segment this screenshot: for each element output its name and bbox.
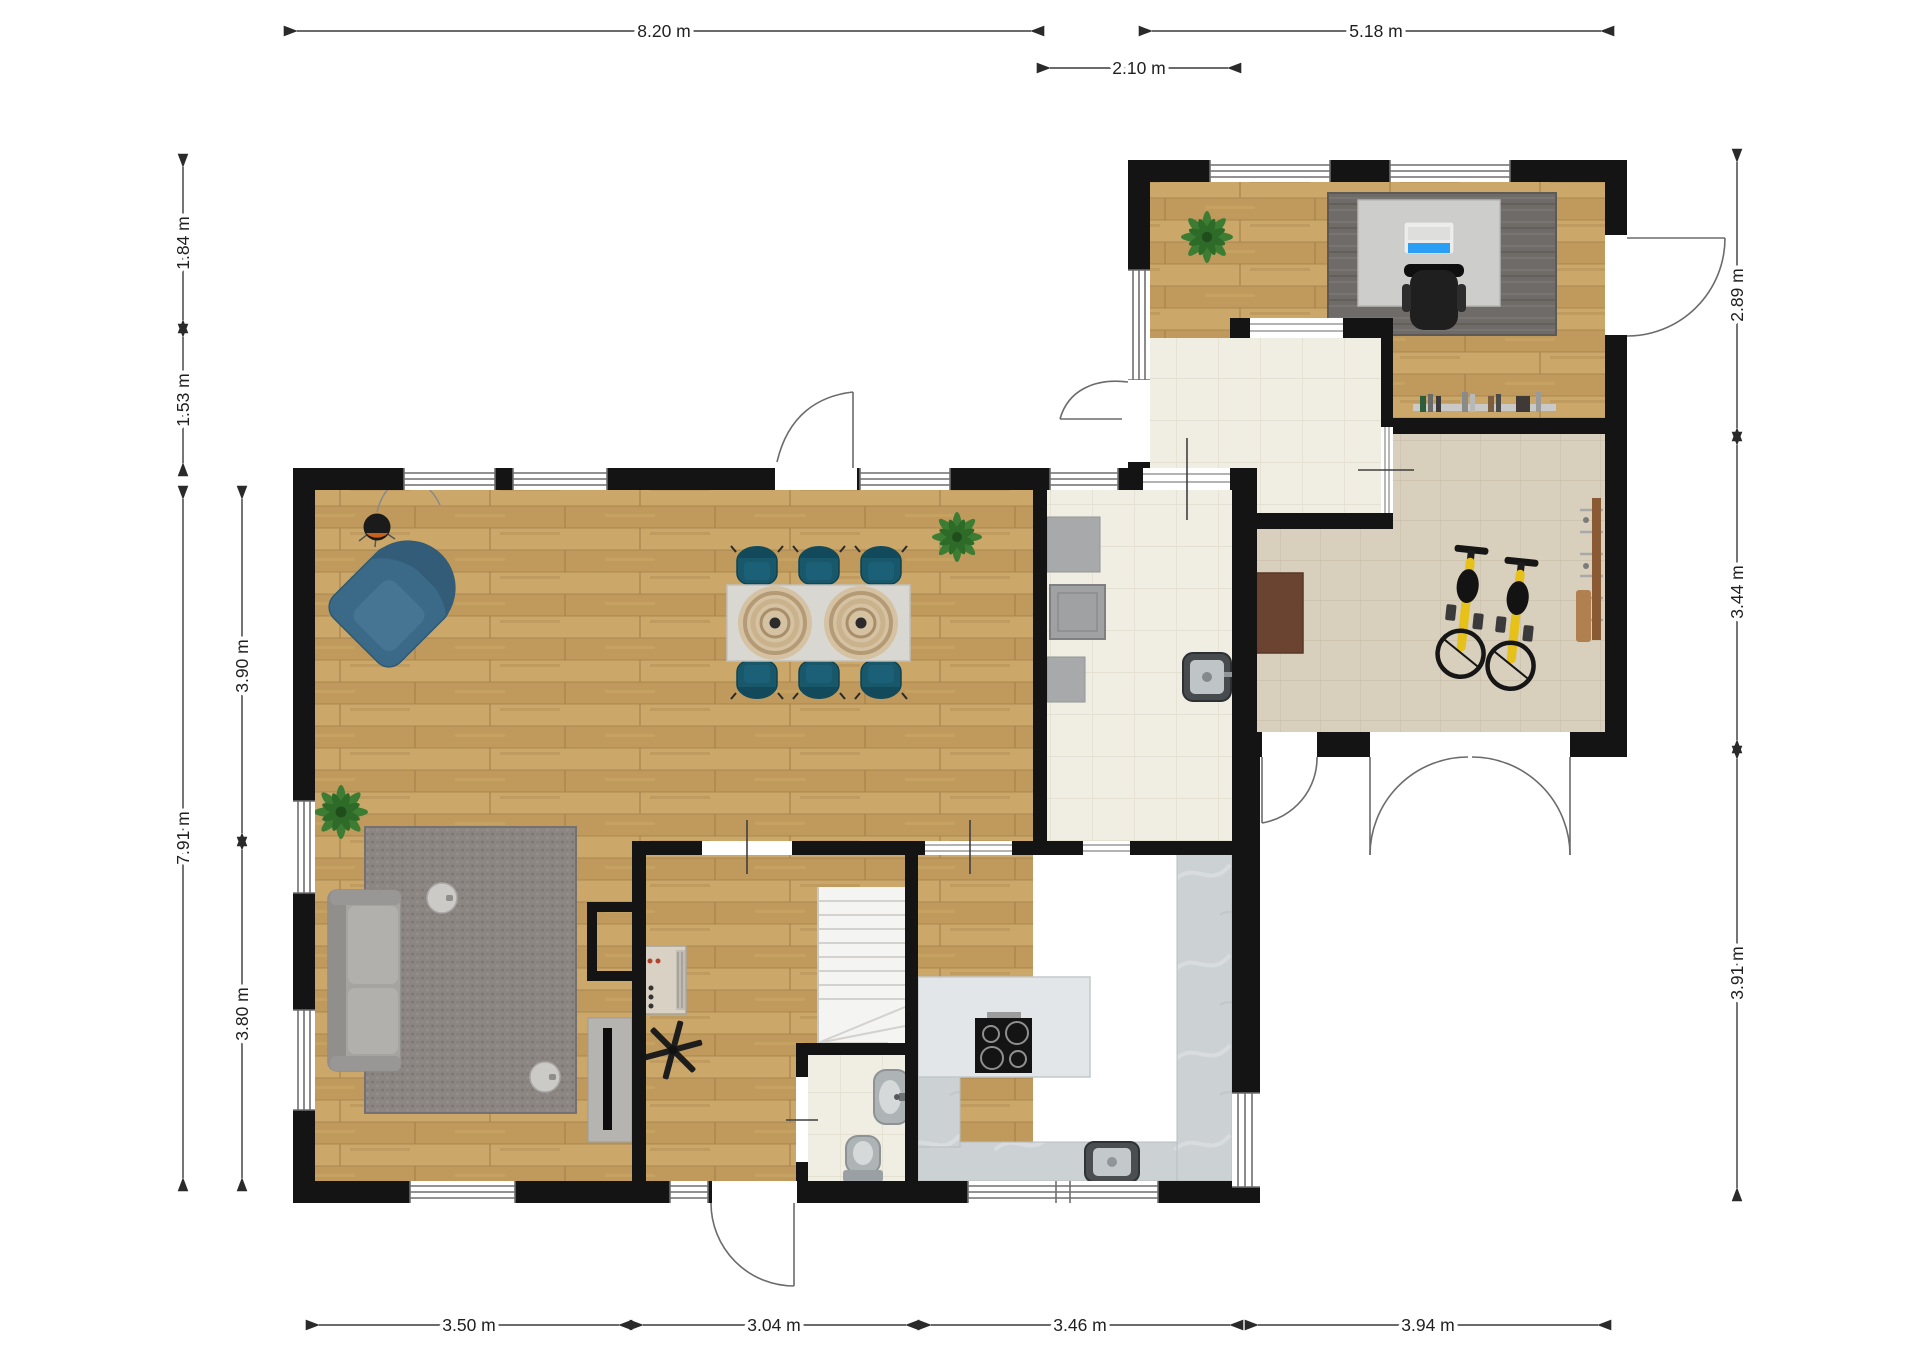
wall	[905, 841, 918, 1181]
window-icon	[1210, 160, 1330, 182]
wall	[1033, 490, 1047, 841]
wall	[1393, 418, 1627, 434]
office-chair-icon	[1402, 264, 1466, 330]
plant-icon	[1181, 211, 1233, 263]
wall	[1232, 468, 1257, 757]
utility-sink-icon	[1183, 653, 1236, 701]
door-swing-icon	[1060, 381, 1128, 419]
window-icon	[410, 1181, 515, 1203]
dim-left-link-offset: 1.53 m	[173, 373, 193, 427]
window-icon	[293, 1010, 315, 1110]
wall	[796, 1043, 918, 1055]
dim-left-living-depth: 3.90 m	[232, 639, 252, 693]
window-icon	[1232, 1093, 1260, 1187]
floor-plan-canvas: 8.20 m 5.18 m 2.10 m 1.84 m 1.53 m 7.91 …	[0, 0, 1920, 1358]
dim-right-gym-depth: 3.44 m	[1727, 565, 1747, 619]
interior-window	[1250, 318, 1343, 338]
door-opening	[775, 468, 857, 490]
round-rug-icon	[738, 586, 812, 660]
door-opening	[1605, 235, 1627, 335]
dim-left-annex-top-offset: 1.84 m	[173, 216, 193, 270]
dim-bottom-kitchen-width: 3.46 m	[1053, 1315, 1107, 1335]
side-table-icon	[530, 1062, 560, 1092]
window-icon	[1390, 160, 1510, 182]
door-swing-icon	[711, 1203, 794, 1286]
cooktop-icon	[975, 1012, 1032, 1073]
window-icon	[1128, 270, 1150, 380]
window-icon	[860, 468, 950, 490]
counter-icon	[1047, 657, 1085, 702]
door-opening	[1370, 732, 1570, 757]
door-swing-icon	[1262, 757, 1317, 823]
laptop-icon	[1404, 222, 1454, 254]
side-table-icon	[427, 883, 457, 913]
counter-icon	[1047, 517, 1100, 572]
plant-icon	[314, 785, 368, 839]
window-icon	[670, 1181, 708, 1203]
door-swing-icon	[777, 392, 853, 468]
dim-top-utility-width: 2.10 m	[1112, 58, 1166, 78]
window-icon	[513, 468, 607, 490]
door-swing-icon	[1627, 238, 1725, 336]
wall	[1381, 318, 1393, 427]
dim-top-annex-width: 5.18 m	[1349, 21, 1403, 41]
door-opening	[1262, 732, 1317, 757]
wall	[1128, 160, 1627, 182]
window-icon	[293, 801, 315, 893]
door-opening	[1128, 380, 1150, 462]
round-rug-icon	[824, 586, 898, 660]
door-opening	[712, 1181, 797, 1203]
sofa-icon	[328, 890, 401, 1071]
window-icon	[404, 468, 495, 490]
plant-icon	[932, 512, 982, 562]
dim-right-lower-depth: 3.91 m	[1727, 946, 1747, 1000]
dim-bottom-living-width: 3.50 m	[442, 1315, 496, 1335]
window-icon	[968, 1181, 1158, 1203]
counter-icon	[918, 1077, 960, 1147]
dim-bottom-gym-width: 3.94 m	[1401, 1315, 1455, 1335]
window-icon	[1050, 468, 1118, 490]
floor-plan-page: 8.20 m 5.18 m 2.10 m 1.84 m 1.53 m 7.91 …	[0, 0, 1920, 1358]
toilet-icon	[843, 1136, 883, 1182]
stairs-floor	[818, 887, 905, 1043]
door-swing-icon	[1370, 757, 1570, 855]
dining-set	[727, 546, 910, 699]
dim-top-main-width: 8.20 m	[637, 21, 691, 41]
dim-left-lower-depth: 3.80 m	[232, 987, 252, 1041]
dim-right-office-depth: 2.89 m	[1727, 268, 1747, 322]
glass-panel	[1083, 841, 1130, 855]
dim-left-main-depth: 7.91 m	[173, 811, 193, 865]
wall	[632, 841, 646, 1181]
dim-bottom-hall-width: 3.04 m	[747, 1315, 801, 1335]
tv-icon	[588, 1018, 632, 1142]
counter-icon	[1177, 851, 1232, 1181]
